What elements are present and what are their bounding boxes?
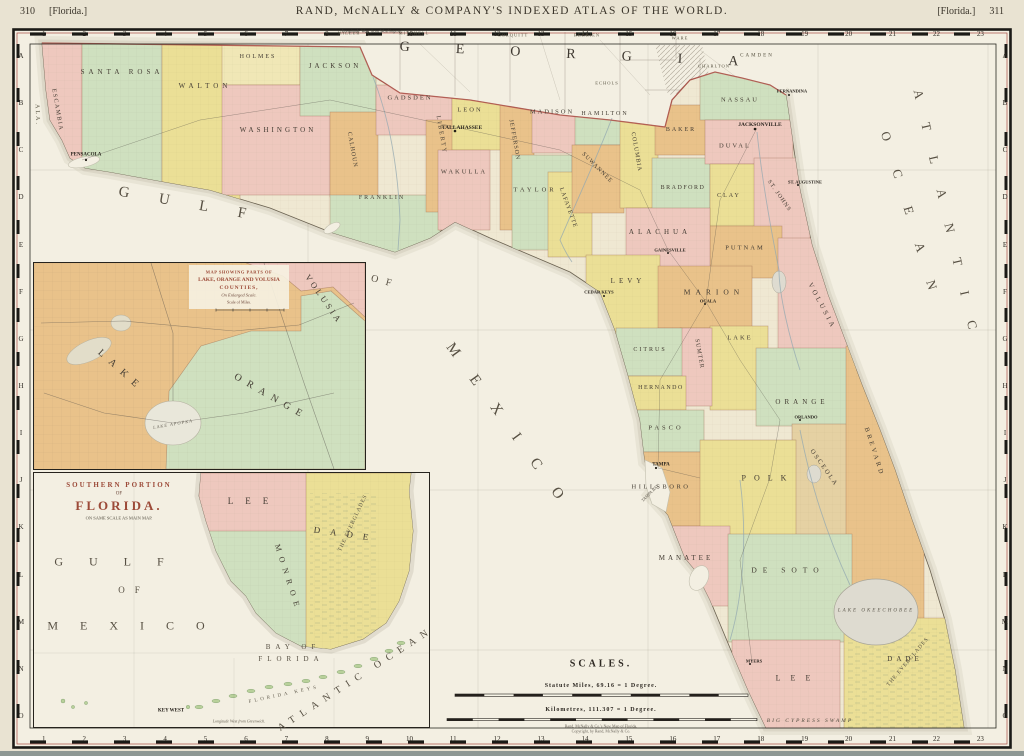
border-row-letter: M (1002, 618, 1008, 626)
border-row-letter: L (1003, 571, 1007, 579)
border-col-number: 3 (123, 735, 127, 743)
border-row-letter: H (1002, 382, 1007, 390)
border-row-letter: I (1004, 429, 1006, 437)
border-row-letter: A (1002, 52, 1007, 60)
border-row-letter: O (1002, 712, 1007, 720)
border-row-letter: D (18, 193, 23, 201)
border-col-number: 23 (977, 735, 984, 743)
border-col-number: 10 (406, 30, 413, 38)
border-row-letter: G (18, 335, 23, 343)
border-col-number: 6 (244, 30, 248, 38)
border-numbers-bottom: 1234567891011121314151617181920212223 (42, 733, 984, 745)
border-col-number: 7 (285, 30, 289, 38)
border-col-number: 13 (538, 30, 545, 38)
border-col-number: 20 (845, 30, 852, 38)
border-col-number: 8 (325, 735, 329, 743)
border-col-number: 4 (163, 735, 167, 743)
border-col-number: 12 (494, 30, 501, 38)
inset1-title-box (189, 265, 289, 309)
border-row-letter: N (18, 665, 23, 673)
border-col-number: 3 (123, 30, 127, 38)
border-row-letter: I (20, 429, 22, 437)
border-col-number: 22 (933, 30, 940, 38)
border-col-number: 13 (538, 735, 545, 743)
border-col-number: 22 (933, 735, 940, 743)
border-row-letter: D (1002, 193, 1007, 201)
border-col-number: 5 (204, 735, 208, 743)
border-col-number: 16 (669, 30, 676, 38)
border-col-number: 14 (581, 30, 588, 38)
border-row-letter: C (19, 146, 24, 154)
border-col-number: 17 (713, 30, 720, 38)
border-row-letter: J (1004, 476, 1007, 484)
border-col-number: 14 (581, 735, 588, 743)
border-col-number: 15 (625, 735, 632, 743)
border-col-number: 9 (366, 735, 370, 743)
inset2-canvas (34, 473, 429, 727)
border-row-letter: E (1003, 241, 1007, 249)
photo-edge (0, 751, 1024, 756)
border-numbers-top: 1234567891011121314151617181920212223 (42, 28, 984, 40)
border-row-letter: F (1003, 288, 1007, 296)
border-col-number: 4 (163, 30, 167, 38)
border-col-number: 20 (845, 735, 852, 743)
inset1-canvas (34, 263, 365, 469)
inset-southern-florida: SOUTHERN PORTION OF FLORIDA. ON SAME SCA… (33, 472, 430, 728)
border-col-number: 8 (325, 30, 329, 38)
border-row-letter: N (1002, 665, 1007, 673)
border-col-number: 18 (757, 30, 764, 38)
border-col-number: 7 (285, 735, 289, 743)
border-col-number: 21 (889, 735, 896, 743)
border-col-number: 1 (42, 30, 46, 38)
inset-lake-orange-volusia: MAP SHOWING PARTS OF LAKE, ORANGE AND VO… (33, 262, 366, 470)
border-col-number: 23 (977, 30, 984, 38)
border-row-letter: F (19, 288, 23, 296)
border-col-number: 11 (450, 30, 457, 38)
border-row-letter: O (18, 712, 23, 720)
border-row-letter: E (19, 241, 23, 249)
border-col-number: 19 (801, 735, 808, 743)
border-row-letter: K (18, 523, 23, 531)
lake-okeechobee (834, 579, 918, 645)
lake-kissimmee (807, 465, 821, 483)
border-col-number: 12 (494, 735, 501, 743)
border-row-letter: J (20, 476, 23, 484)
border-row-letter: H (18, 382, 23, 390)
border-row-letter: G (1002, 335, 1007, 343)
border-row-letter: C (1003, 146, 1008, 154)
border-col-number: 1 (42, 735, 46, 743)
border-row-letter: K (1002, 523, 1007, 531)
border-col-number: 6 (244, 735, 248, 743)
border-row-letter: M (18, 618, 24, 626)
border-row-letter: L (19, 571, 23, 579)
border-letters-right: ABCDEFGHIJKLMNO (999, 52, 1011, 720)
inset1-lake-eustis (111, 315, 131, 331)
atlas-page-florida: 310 [Florida.] RAND, McNALLY & COMPANY'S… (0, 0, 1024, 756)
border-col-number: 9 (366, 30, 370, 38)
border-letters-left: ABCDEFGHIJKLMNO (15, 52, 27, 720)
border-col-number: 19 (801, 30, 808, 38)
border-col-number: 11 (450, 735, 457, 743)
border-row-letter: B (19, 99, 24, 107)
border-col-number: 10 (406, 735, 413, 743)
border-row-letter: B (1003, 99, 1008, 107)
border-col-number: 17 (713, 735, 720, 743)
border-row-letter: A (18, 52, 23, 60)
border-col-number: 2 (82, 30, 86, 38)
border-col-number: 15 (625, 30, 632, 38)
border-col-number: 2 (82, 735, 86, 743)
border-col-number: 18 (757, 735, 764, 743)
border-col-number: 21 (889, 30, 896, 38)
border-col-number: 16 (669, 735, 676, 743)
border-col-number: 5 (204, 30, 208, 38)
